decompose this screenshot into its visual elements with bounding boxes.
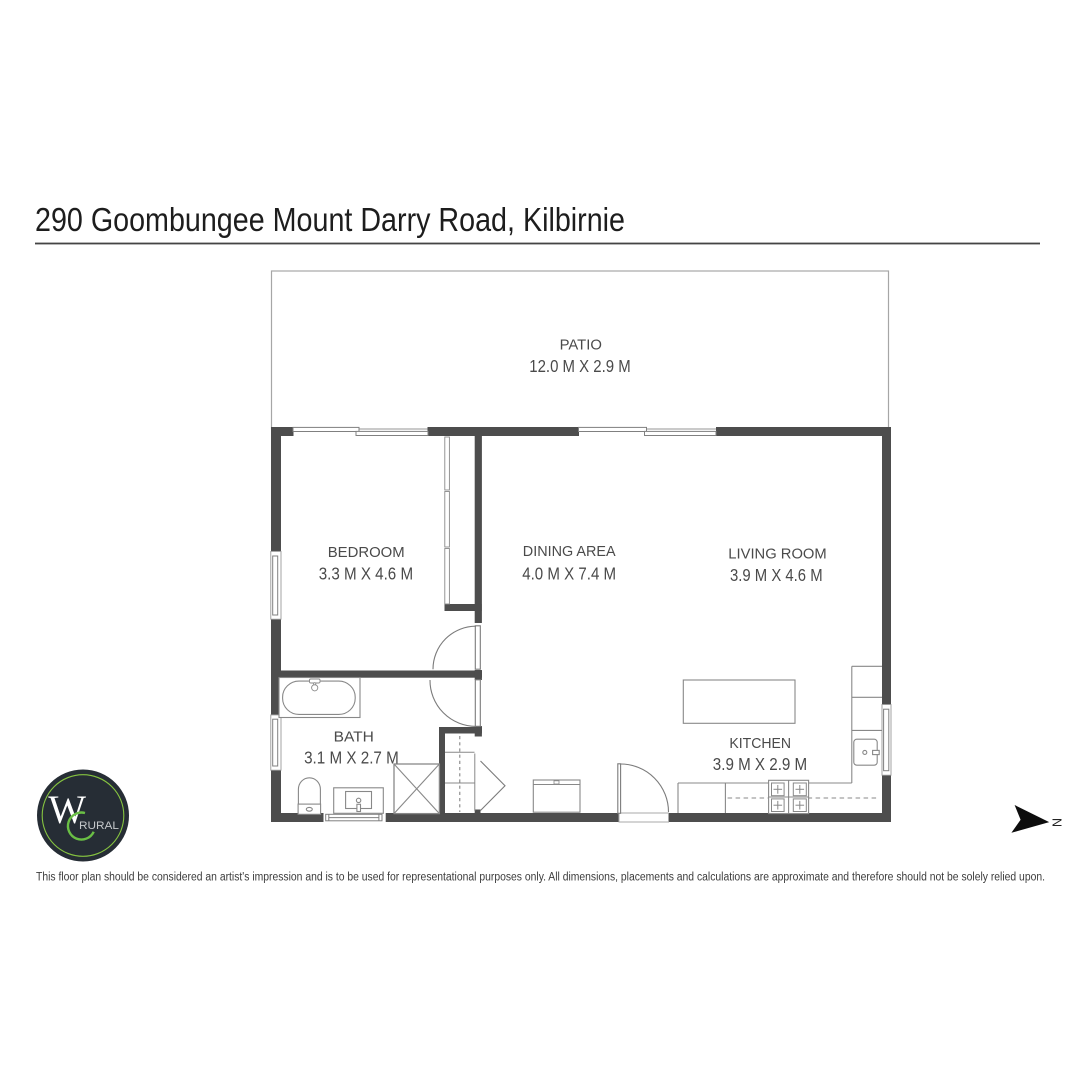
svg-text:3.9 M X 2.9 M: 3.9 M X 2.9 M bbox=[713, 754, 807, 774]
svg-text:PATIO: PATIO bbox=[560, 336, 602, 353]
svg-text:KITCHEN: KITCHEN bbox=[729, 735, 791, 752]
svg-text:3.1 M X 2.7 M: 3.1 M X 2.7 M bbox=[304, 747, 399, 767]
svg-text:BATH: BATH bbox=[334, 729, 374, 746]
svg-text:LIVING ROOM: LIVING ROOM bbox=[728, 546, 826, 563]
svg-text:290 Goombungee Mount Darry Roa: 290 Goombungee Mount Darry Road, Kilbirn… bbox=[35, 202, 625, 239]
svg-text:12.0 M X 2.9 M: 12.0 M X 2.9 M bbox=[529, 356, 630, 376]
svg-text:RURAL: RURAL bbox=[79, 820, 119, 832]
svg-text:4.0 M X 7.4 M: 4.0 M X 7.4 M bbox=[522, 564, 616, 584]
svg-text:3.9 M X 4.6 M: 3.9 M X 4.6 M bbox=[730, 565, 823, 585]
svg-text:BEDROOM: BEDROOM bbox=[328, 544, 405, 561]
svg-text:3.3 M X 4.6 M: 3.3 M X 4.6 M bbox=[319, 564, 413, 584]
svg-text:DINING AREA: DINING AREA bbox=[523, 543, 616, 560]
svg-text:This floor plan should be cons: This floor plan should be considered an … bbox=[36, 871, 1045, 883]
svg-text:N: N bbox=[1050, 818, 1064, 827]
